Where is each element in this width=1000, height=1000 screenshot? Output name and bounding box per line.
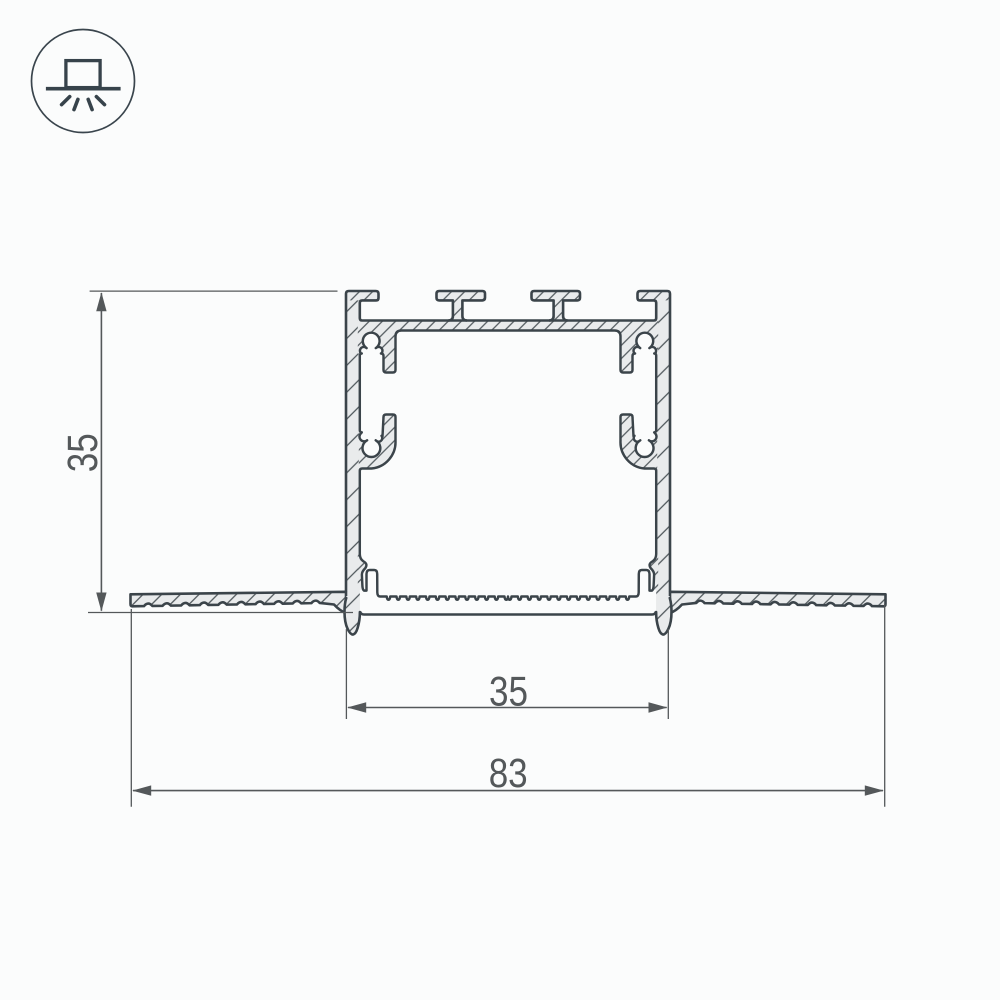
svg-text:35: 35 [60,433,107,472]
svg-text:35: 35 [489,667,528,714]
svg-text:83: 83 [489,750,528,796]
